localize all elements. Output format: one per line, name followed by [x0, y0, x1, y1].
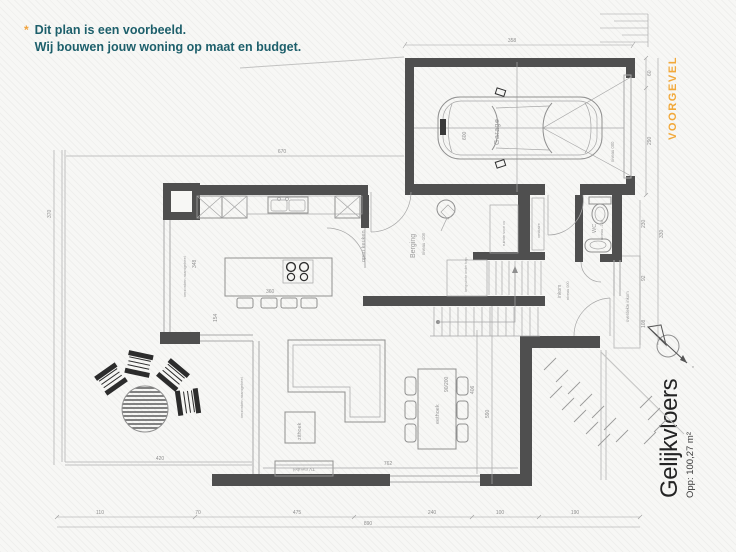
terrace-chairs [95, 351, 201, 416]
dim-island: 360 [266, 289, 275, 295]
label-berging-level: niveau -108 [421, 232, 426, 255]
label-keuken: open keuken [361, 231, 367, 263]
label-tv: TV meubel [293, 467, 315, 472]
boiler-symbol [437, 200, 455, 231]
dim-bottom-4: 100 [496, 510, 505, 516]
label-inkom: inkom [557, 285, 563, 298]
dim-right-108: 108 [641, 319, 647, 328]
floor-plan-page: * Dit plan is een voorbeeld. Wij bouwen … [0, 0, 736, 552]
dim-bottom-5: 190 [571, 510, 580, 516]
label-cv: ruimte voor cv [501, 221, 506, 246]
island-stools [237, 298, 317, 308]
label-garage: Garage [494, 119, 501, 145]
dim-bottom-0: 110 [96, 510, 104, 516]
kitchen-island [225, 258, 332, 296]
dim-right-290: 290 [647, 136, 653, 145]
dim-right-330: 330 [659, 229, 665, 238]
interior-doors [327, 192, 610, 336]
dim-right-92: 92 [641, 275, 647, 281]
label-wc-level: niveau -108 [600, 220, 604, 240]
dim-406: 406 [470, 385, 476, 394]
stairs-lower [430, 307, 540, 336]
walls [160, 58, 635, 486]
label-inkom-level: niveau 000 [566, 281, 570, 300]
kitchen-cabinets [197, 196, 362, 218]
north-arrow-icon: * [648, 325, 694, 372]
label-wc: WC [592, 224, 598, 233]
terrace-table [120, 386, 170, 432]
dim-590: 590 [485, 409, 491, 418]
dim-table: 90/200 [444, 376, 450, 392]
label-vestiaire: vestiaire [536, 222, 541, 238]
dim-bottom-total: 890 [364, 521, 373, 527]
sofa [288, 340, 385, 422]
dim-762: 762 [384, 461, 393, 467]
dim-left-370: 370 [47, 209, 53, 218]
label-zithoek: zithoek [297, 422, 303, 440]
wc-fixtures [585, 197, 611, 252]
dim-348: 348 [192, 259, 198, 268]
dim-terrace: 420 [156, 456, 165, 462]
label-eethoek: eethoek [435, 404, 441, 424]
windows [164, 220, 620, 482]
label-garage-level: niveau 000 [610, 141, 615, 162]
dim-right-230: 230 [641, 219, 647, 228]
label-berging: Berging [410, 234, 417, 258]
terrain-hatch [544, 358, 666, 446]
label-overdekte-inkom: overdekte inkom [625, 291, 630, 322]
label-raam-keuken: verzonken raamgeheel [182, 256, 187, 297]
garage-door [543, 75, 631, 178]
dim-bottom-2: 475 [293, 510, 302, 516]
dim-right-60: 60 [647, 70, 653, 76]
plan-svg: * 358 670 600 60 290 330 [0, 0, 736, 552]
dim-garage: 600 [462, 131, 468, 140]
dim-bottom-1: 70 [195, 510, 201, 516]
svg-text:*: * [692, 366, 694, 372]
dim-bottom-3: 240 [428, 510, 437, 516]
corner-setback-marks [600, 14, 648, 47]
dim-setback: 670 [278, 149, 287, 155]
label-onder-trap: bergruimte onder trap [464, 257, 468, 292]
label-raam-living: verzonken raamgeheel [239, 377, 244, 418]
kitchen-sink [268, 197, 308, 213]
dim-top: 358 [508, 38, 517, 44]
dim-154: 154 [213, 313, 219, 322]
